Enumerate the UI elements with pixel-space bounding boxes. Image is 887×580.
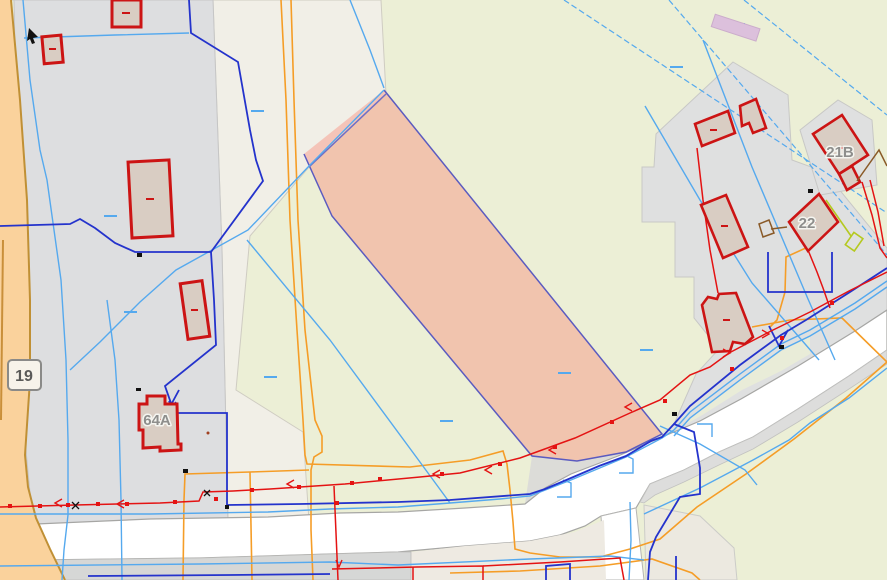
svg-text:64A: 64A [143, 412, 171, 429]
svg-text:19: 19 [15, 368, 33, 385]
svg-text:21B: 21B [826, 144, 854, 161]
svg-text:22: 22 [799, 215, 816, 232]
